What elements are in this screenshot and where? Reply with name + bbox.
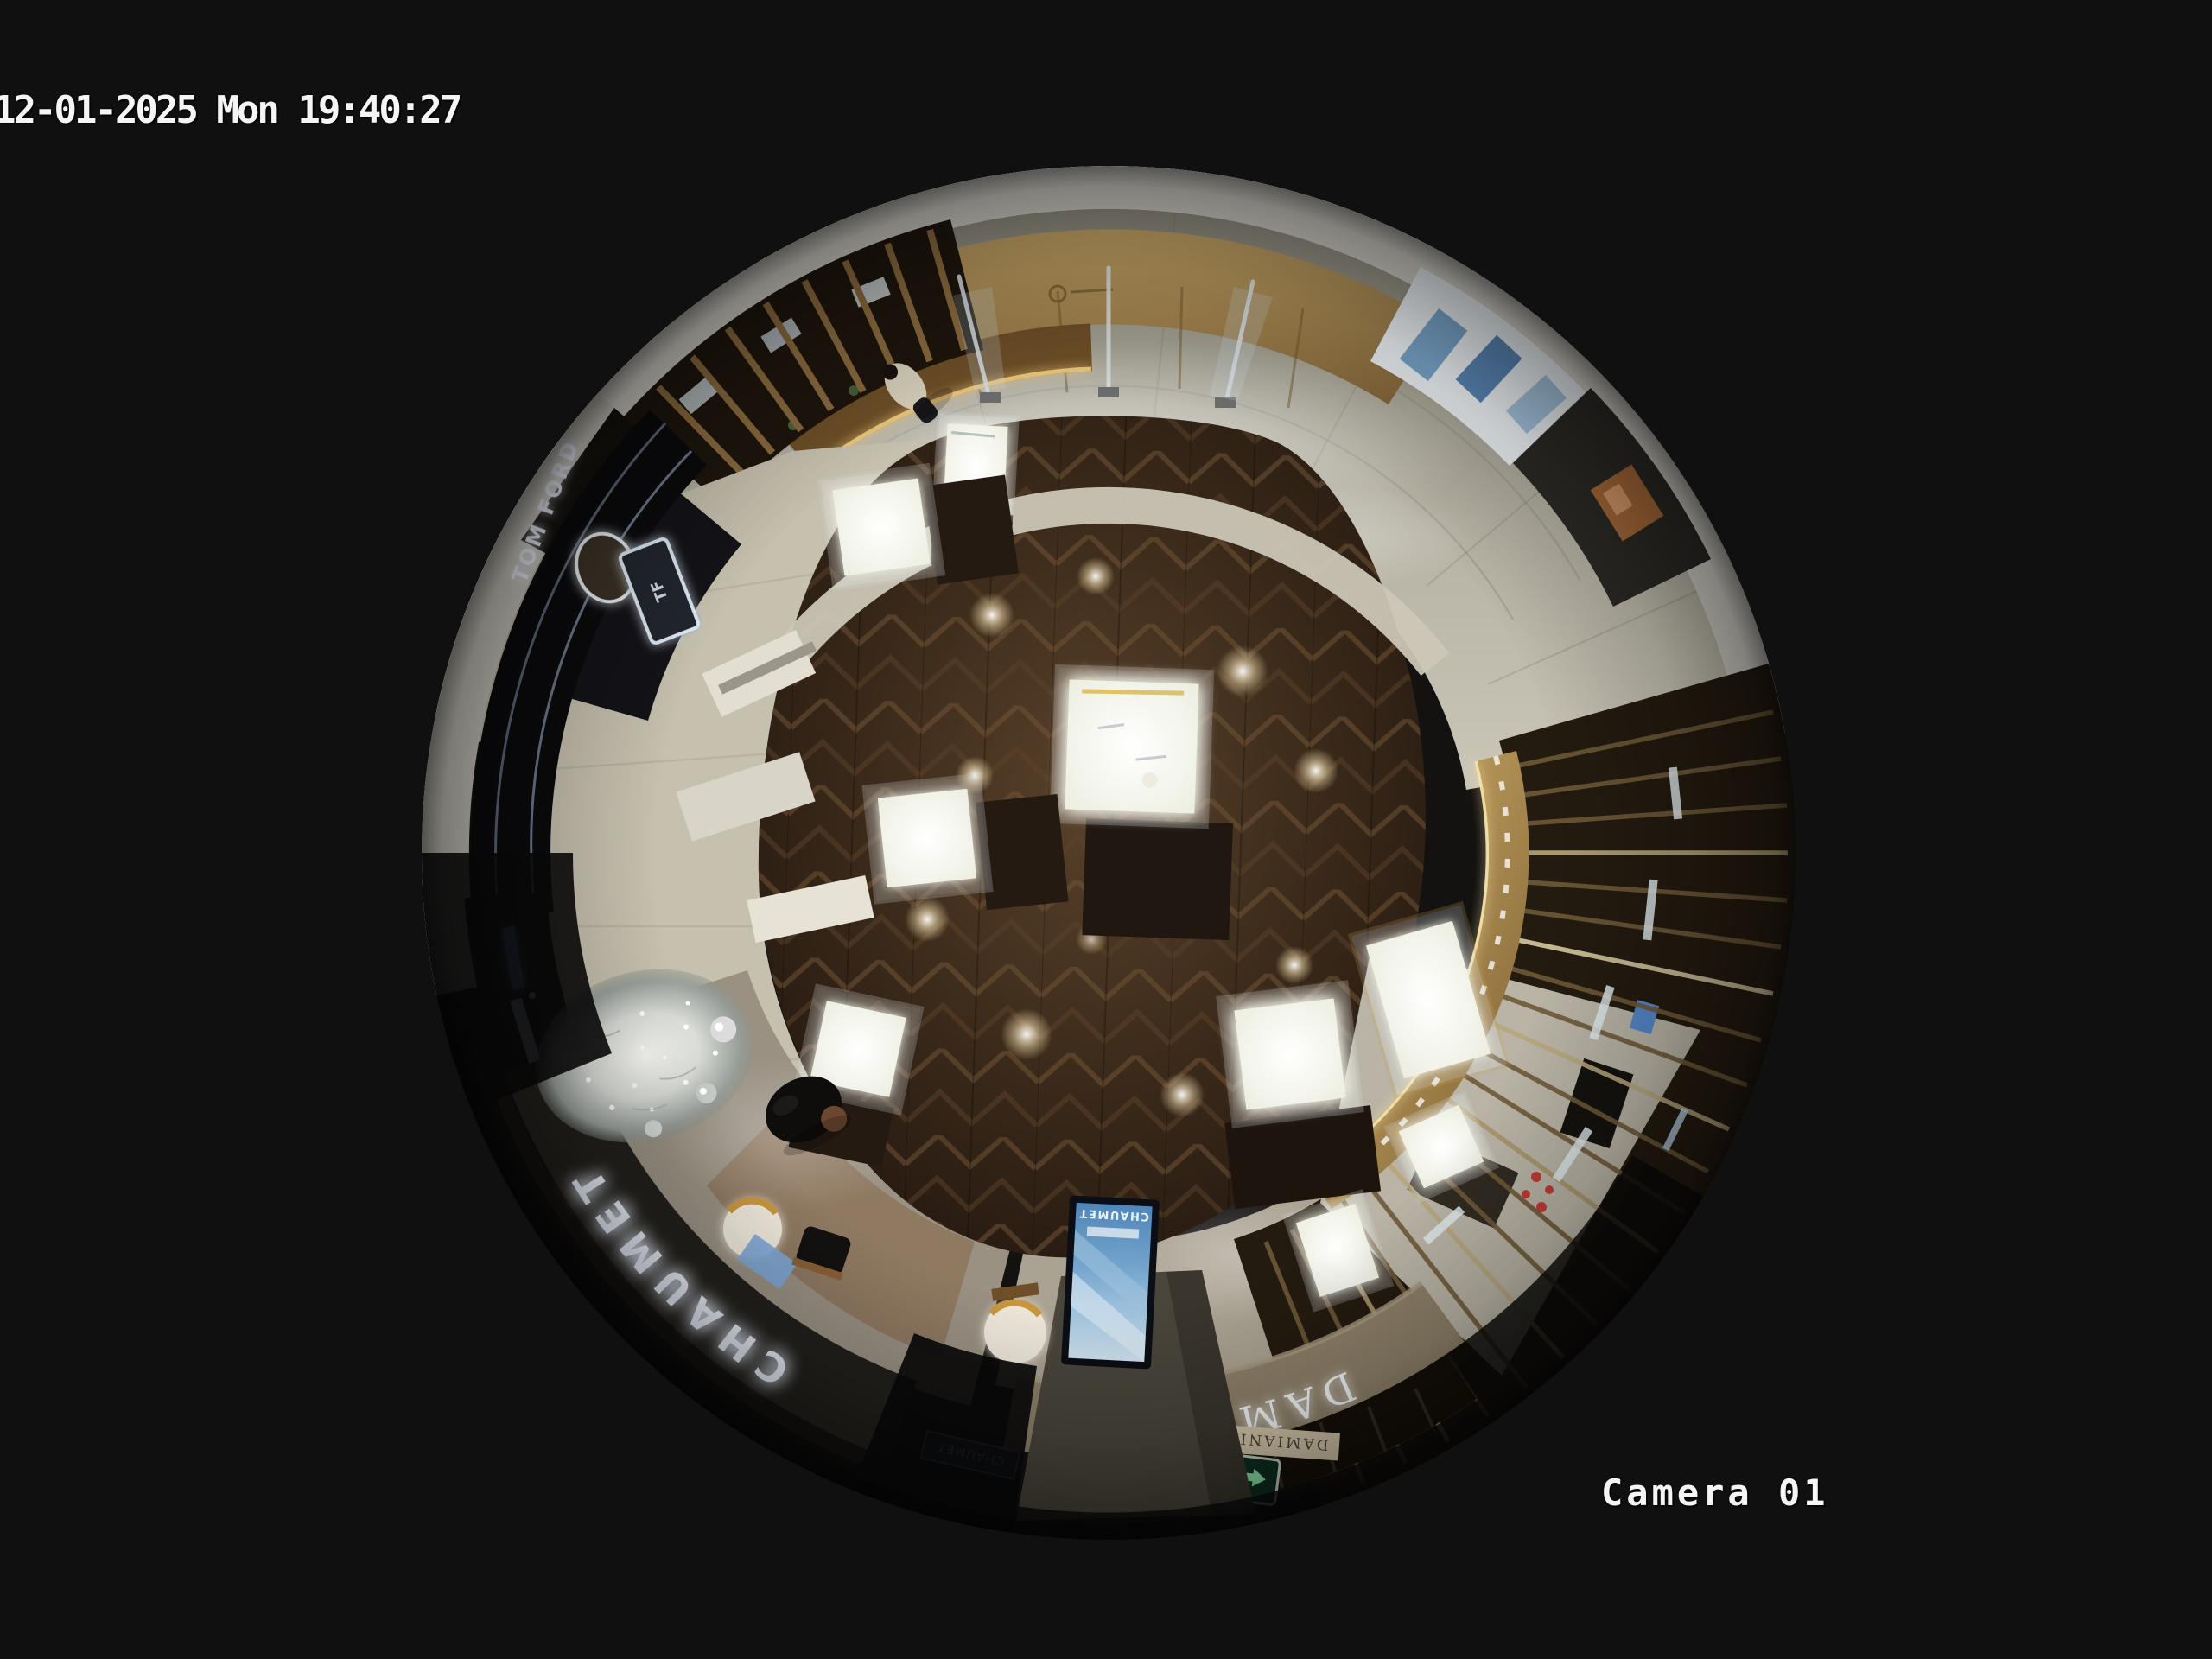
- cctv-view: 12-01-2025 Mon 19:40:27 Camera 01: [0, 0, 2212, 1659]
- osd-timestamp: 12-01-2025 Mon 19:40:27: [0, 88, 460, 132]
- vignette: [422, 166, 1796, 1540]
- fisheye-image: TOM FORD TF: [422, 166, 1796, 1540]
